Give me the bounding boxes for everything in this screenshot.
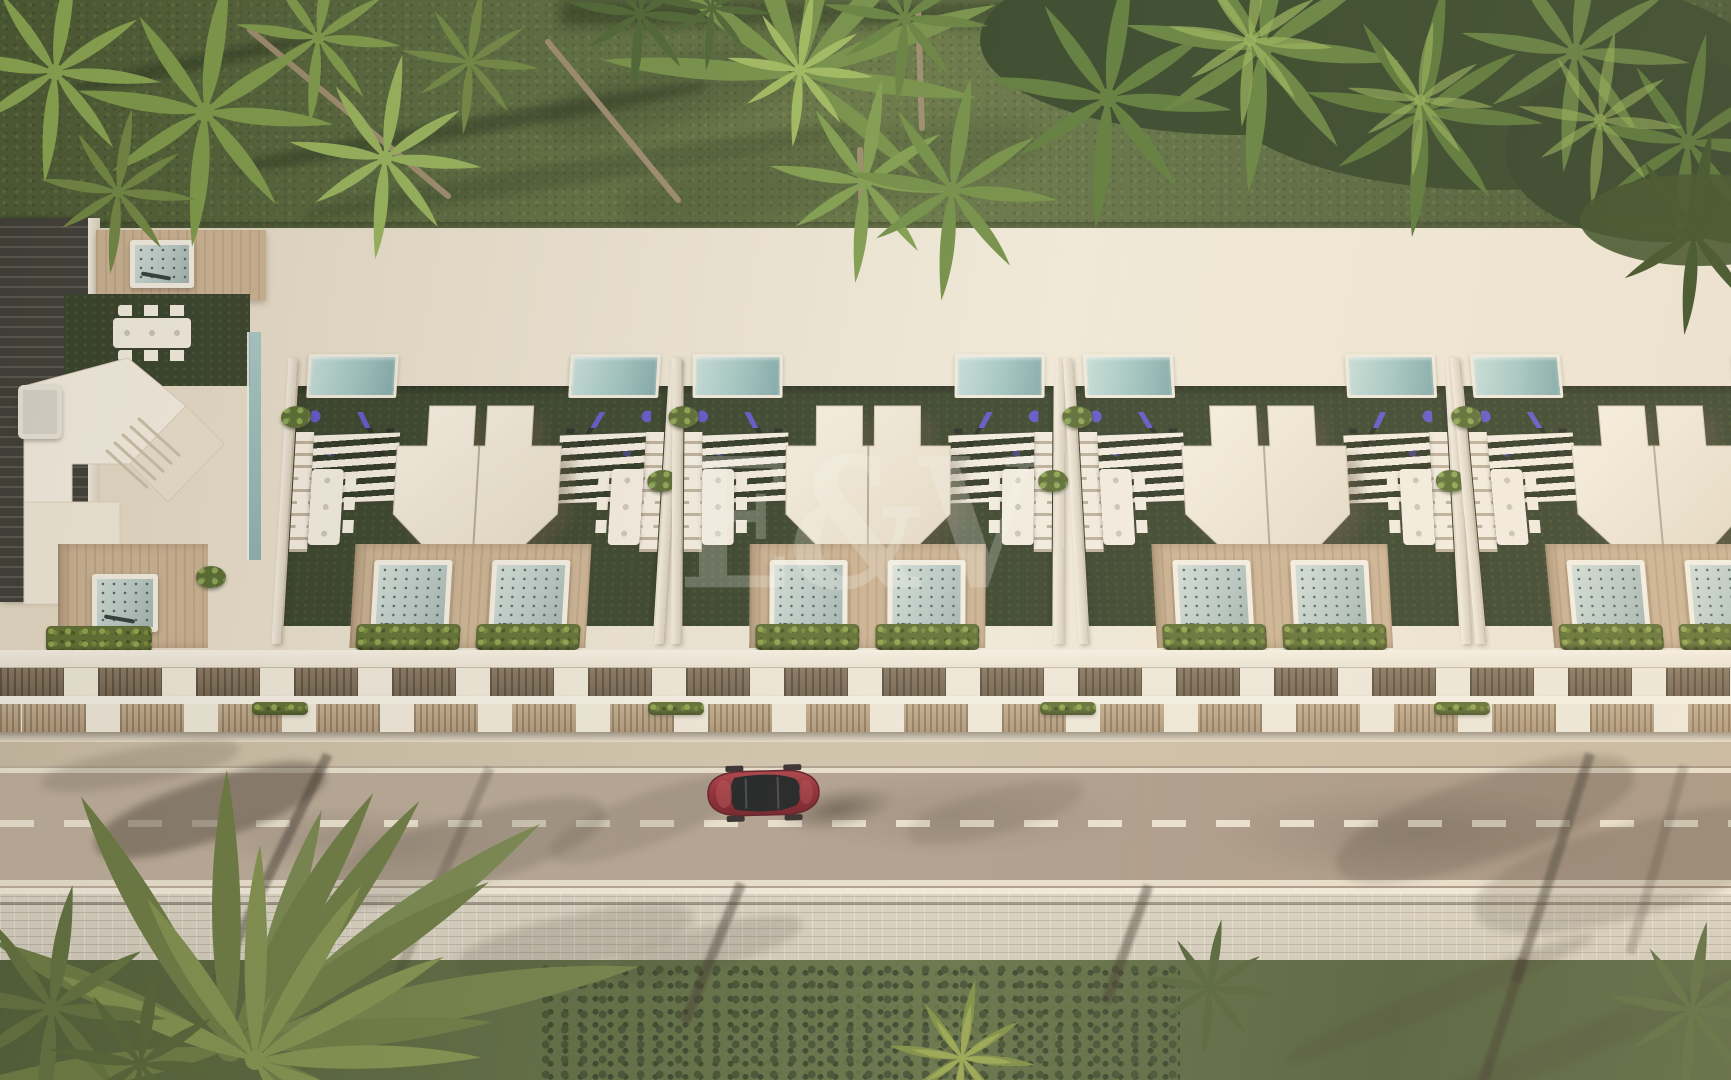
foreground-garden [0,960,1731,1080]
dining-set [293,464,358,550]
planter-palm [1062,406,1093,428]
balcony-planter [1434,702,1490,715]
dining-table [1002,469,1034,545]
end-terrace-jacuzzi [130,240,194,288]
plunge-pool [693,354,783,398]
road-edge-line [0,880,1731,886]
hedge-planter [475,624,581,650]
hedge-planter [1162,624,1267,650]
hedge-planter [1282,624,1387,650]
end-unit-hedge [46,626,152,652]
dining-table [1399,469,1435,545]
hedge-planter [1678,624,1731,650]
hedge-planter [1558,624,1664,650]
plunge-pool [1083,354,1175,398]
dining-set [1085,464,1150,550]
party-wall [1054,358,1064,644]
road-edge-line [0,768,1731,773]
facade-parapet [0,650,1731,668]
hedge-planter [755,624,859,650]
palm-grove-背background [0,0,1731,228]
shrub-texture [540,965,1180,1080]
plunge-pool [1470,354,1564,398]
end-unit-sofa [18,385,62,439]
balcony-planter [252,702,308,715]
facade-upper-louvers [0,668,1731,696]
aerial-render: E&V [0,0,1731,1080]
balcony-planter [1040,702,1096,715]
street-facade [0,650,1731,742]
dining-table [113,318,191,348]
dining-table [607,469,644,545]
plunge-pool [306,354,399,398]
dining-table [702,469,734,545]
facade-shadow [0,732,1731,742]
red-sports-car [699,761,831,824]
paver-sidewalk [0,888,1731,960]
party-wall [671,358,681,644]
planter-palm [668,406,698,428]
dining-set [1476,464,1544,550]
plunge-pool [568,354,661,398]
planter-palm [1038,470,1068,492]
balcony-planter [648,702,704,715]
hedge-planter [875,624,979,650]
plunge-pool [1345,354,1437,398]
dining-table [1099,469,1135,545]
end-unit-jacuzzi [92,574,158,632]
rooftop-terrace-module [1449,352,1731,652]
hedge-planter [355,624,461,650]
dining-set [688,464,748,550]
rooftop-terrace-module [671,352,1065,652]
plunge-pool [955,354,1045,398]
rooftop-terrace-module [1063,352,1472,652]
curbside-walkway [0,742,1731,766]
planter-palm [196,566,226,588]
dining-table [307,469,344,545]
rooftop-terrace-module [271,352,681,652]
dining-table [1490,469,1529,545]
canopy-edge [560,0,1120,26]
